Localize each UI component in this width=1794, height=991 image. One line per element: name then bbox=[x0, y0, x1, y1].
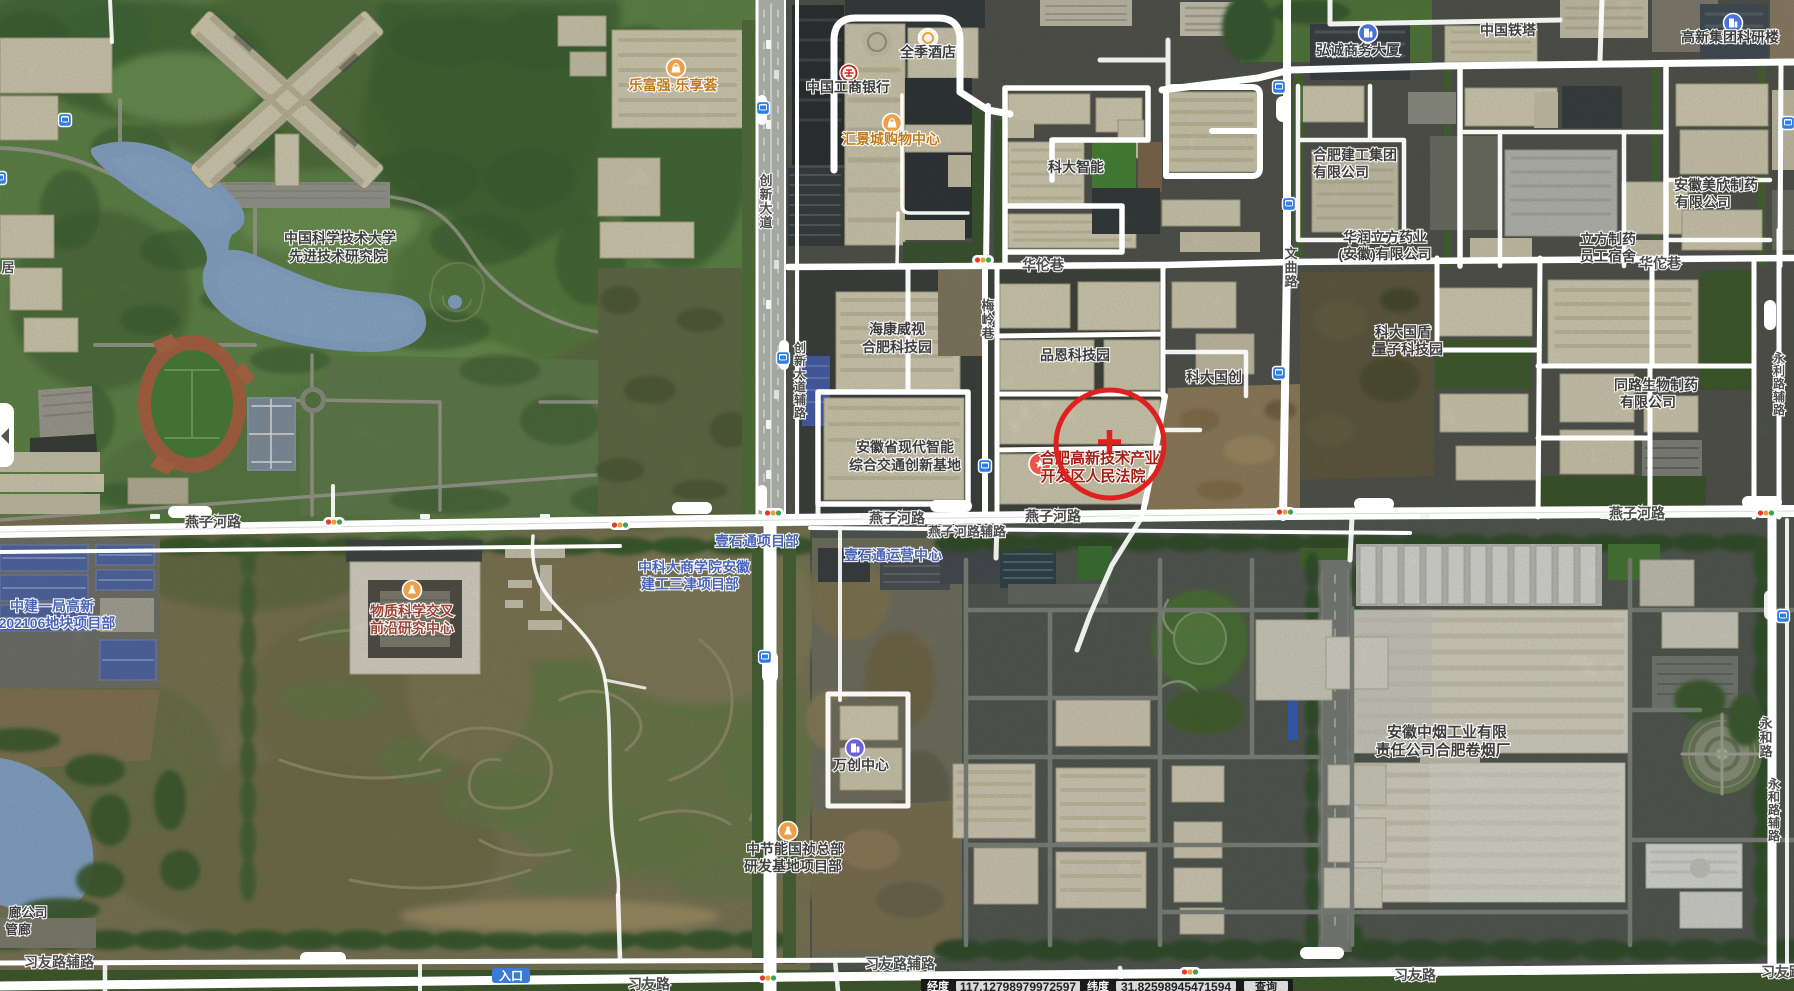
svg-text:品恩科技园: 品恩科技园 bbox=[1040, 347, 1110, 363]
svg-text:燕子河路: 燕子河路 bbox=[869, 510, 926, 526]
svg-text:燕子河路辅路: 燕子河路辅路 bbox=[928, 524, 1007, 539]
svg-text:巷: 巷 bbox=[980, 326, 995, 341]
svg-text:梅: 梅 bbox=[981, 298, 994, 313]
svg-text:大: 大 bbox=[759, 201, 772, 216]
svg-text:合肥科技园: 合肥科技园 bbox=[862, 339, 932, 355]
svg-text:创: 创 bbox=[758, 173, 772, 188]
svg-text:责任公司合肥卷烟厂: 责任公司合肥卷烟厂 bbox=[1375, 741, 1510, 759]
svg-text:壹石通运营中心: 壹石通运营中心 bbox=[844, 547, 942, 563]
svg-text:管廊: 管廊 bbox=[5, 922, 31, 937]
svg-text:建工三津项目部: 建工三津项目部 bbox=[641, 576, 739, 592]
svg-text:物质科学交叉: 物质科学交叉 bbox=[370, 603, 455, 619]
svg-text:中建一局高新: 中建一局高新 bbox=[10, 598, 94, 614]
svg-text:中国科学技术大学: 中国科学技术大学 bbox=[284, 230, 396, 246]
svg-text:研发基地项目部: 研发基地项目部 bbox=[744, 858, 842, 874]
svg-text:利: 利 bbox=[1773, 363, 1785, 378]
svg-text:科大国盾: 科大国盾 bbox=[1375, 324, 1431, 340]
svg-text:117.12798979972597: 117.12798979972597 bbox=[960, 980, 1076, 991]
svg-text:量子科技园: 量子科技园 bbox=[1373, 341, 1443, 357]
svg-text:居: 居 bbox=[1, 260, 14, 275]
svg-text:路: 路 bbox=[1773, 376, 1786, 391]
svg-text:辅: 辅 bbox=[1768, 815, 1780, 830]
svg-text:员工宿舍: 员工宿舍 bbox=[1580, 248, 1637, 264]
svg-text:前沿研究中心: 前沿研究中心 bbox=[370, 620, 454, 636]
svg-text:新: 新 bbox=[759, 187, 772, 202]
svg-text:曲: 曲 bbox=[1284, 260, 1297, 275]
svg-text:路: 路 bbox=[1768, 802, 1781, 817]
svg-text:31.82598945471594: 31.82598945471594 bbox=[1121, 980, 1231, 991]
svg-text:大: 大 bbox=[794, 366, 806, 381]
svg-text:廊公司: 廊公司 bbox=[8, 905, 47, 920]
svg-text:立方制药: 立方制药 bbox=[1580, 231, 1636, 247]
svg-text:同路生物制药: 同路生物制药 bbox=[1614, 377, 1698, 393]
svg-text:华润立方药业: 华润立方药业 bbox=[1343, 229, 1427, 245]
svg-text:中国工商银行: 中国工商银行 bbox=[806, 79, 890, 95]
svg-text:安徽省现代智能: 安徽省现代智能 bbox=[856, 439, 954, 455]
svg-text:综合交通创新基地: 综合交通创新基地 bbox=[849, 457, 961, 473]
svg-text:岭: 岭 bbox=[981, 312, 994, 327]
svg-text:习友路: 习友路 bbox=[1394, 967, 1437, 983]
svg-text:万创中心: 万创中心 bbox=[832, 757, 889, 773]
svg-text:安徽中烟工业有限: 安徽中烟工业有限 bbox=[1387, 723, 1507, 741]
svg-text:有限公司: 有限公司 bbox=[1620, 394, 1676, 410]
svg-text:科大智能: 科大智能 bbox=[1048, 159, 1104, 175]
svg-text:习友路: 习友路 bbox=[628, 976, 671, 991]
svg-text:科大国创: 科大国创 bbox=[1186, 369, 1242, 385]
svg-text:中科大商学院安徽: 中科大商学院安徽 bbox=[638, 559, 751, 575]
svg-text:弘诚商务大厦: 弘诚商务大厦 bbox=[1316, 42, 1401, 58]
svg-text:汇景城购物中心: 汇景城购物中心 bbox=[842, 131, 940, 147]
svg-text:习友路辅路: 习友路辅路 bbox=[24, 954, 95, 970]
svg-text:和: 和 bbox=[1759, 730, 1772, 745]
svg-text:习友路辅路: 习友路辅路 bbox=[865, 956, 936, 972]
svg-text:习友路: 习友路 bbox=[1761, 964, 1794, 980]
svg-text:海康威视: 海康威视 bbox=[869, 321, 925, 337]
svg-text:安徽美欣制药: 安徽美欣制药 bbox=[1674, 177, 1758, 193]
svg-text:先进技术研究院: 先进技术研究院 bbox=[289, 248, 387, 264]
svg-text:华伦巷: 华伦巷 bbox=[1022, 257, 1065, 273]
svg-text:壹石通项目部: 壹石通项目部 bbox=[715, 533, 799, 549]
svg-text:入口: 入口 bbox=[499, 969, 523, 983]
svg-text:有限公司: 有限公司 bbox=[1313, 164, 1369, 180]
svg-text:辅: 辅 bbox=[794, 392, 806, 407]
svg-text:永: 永 bbox=[1772, 350, 1785, 365]
svg-text:燕子河路: 燕子河路 bbox=[185, 514, 242, 530]
svg-text:(安徽)有限公司: (安徽)有限公司 bbox=[1338, 246, 1431, 262]
svg-text:路: 路 bbox=[1759, 744, 1773, 759]
svg-text:华佗巷: 华佗巷 bbox=[1639, 255, 1682, 271]
svg-text:永: 永 bbox=[1767, 776, 1780, 791]
svg-text:纬度: 纬度 bbox=[1087, 979, 1110, 991]
svg-text:文: 文 bbox=[1284, 246, 1298, 261]
svg-text:新: 新 bbox=[794, 353, 806, 368]
svg-text:查询: 查询 bbox=[1255, 979, 1277, 991]
svg-text:中国铁塔: 中国铁塔 bbox=[1480, 22, 1537, 38]
svg-text:乐富强·乐享荟: 乐富强·乐享荟 bbox=[629, 77, 719, 93]
svg-text:路: 路 bbox=[1768, 828, 1781, 843]
svg-text:中节能国祯总部: 中节能国祯总部 bbox=[746, 841, 844, 857]
svg-text:合肥建工集团: 合肥建工集团 bbox=[1313, 147, 1397, 163]
svg-text:路: 路 bbox=[1284, 274, 1298, 289]
svg-text:路: 路 bbox=[1773, 402, 1786, 417]
svg-text:202106地块项目部: 202106地块项目部 bbox=[0, 615, 115, 631]
svg-text:有限公司: 有限公司 bbox=[1675, 194, 1731, 210]
svg-text:辅: 辅 bbox=[1773, 389, 1785, 404]
svg-text:经度: 经度 bbox=[927, 979, 950, 991]
svg-text:道: 道 bbox=[759, 215, 772, 230]
svg-text:路: 路 bbox=[794, 405, 807, 420]
svg-text:道: 道 bbox=[794, 379, 806, 394]
svg-text:燕子河路: 燕子河路 bbox=[1025, 508, 1082, 524]
svg-text:高新集团科研楼: 高新集团科研楼 bbox=[1681, 29, 1779, 45]
svg-text:永: 永 bbox=[1758, 716, 1773, 731]
svg-text:全季酒店: 全季酒店 bbox=[899, 44, 956, 60]
svg-text:和: 和 bbox=[1767, 789, 1780, 804]
svg-text:燕子河路: 燕子河路 bbox=[1609, 505, 1666, 521]
svg-text:创: 创 bbox=[793, 340, 806, 355]
svg-text:开发区人民法院: 开发区人民法院 bbox=[1040, 467, 1145, 485]
